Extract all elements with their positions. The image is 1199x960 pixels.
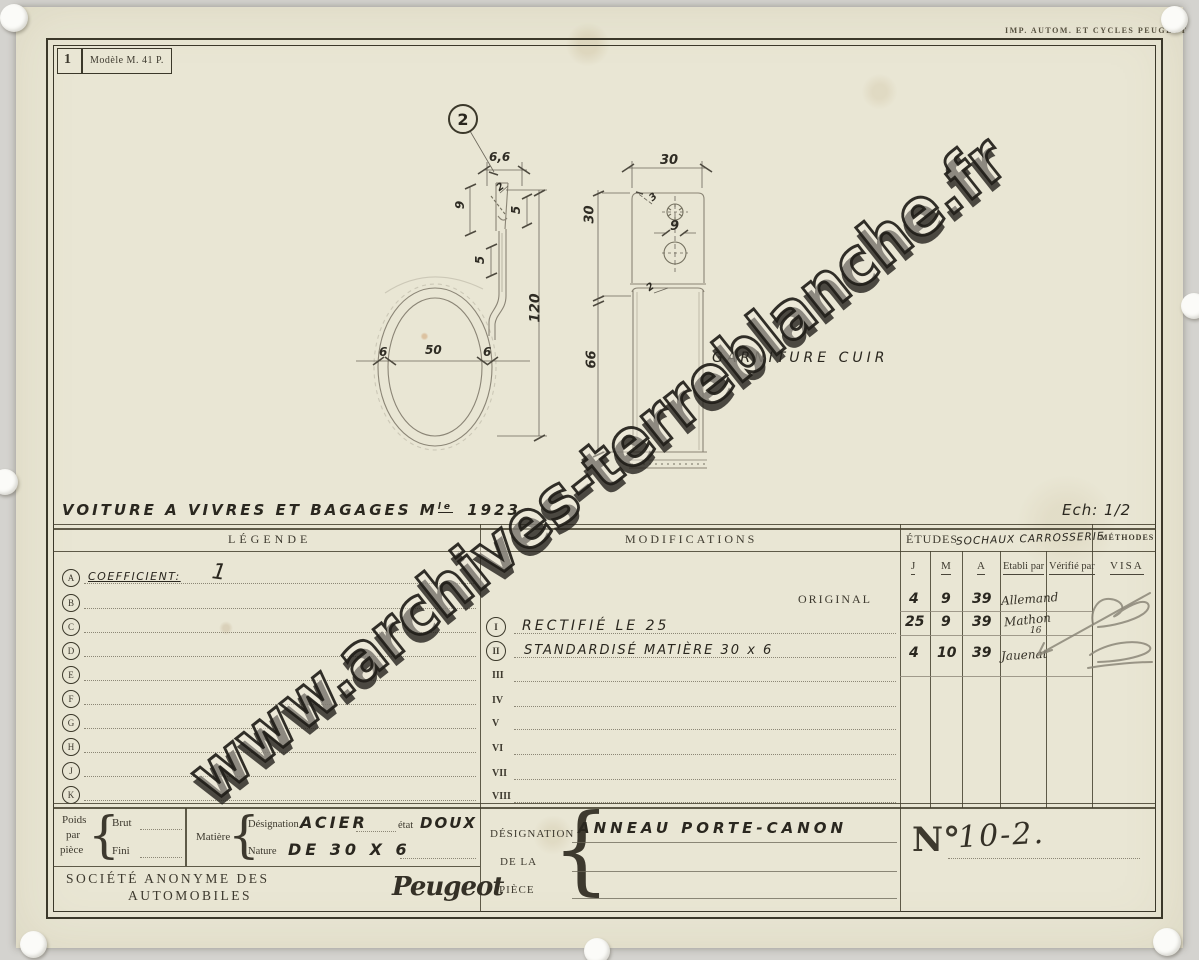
modif-line bbox=[514, 681, 896, 682]
legend-circle-j: J bbox=[62, 762, 80, 780]
modif-numeral-3: III bbox=[492, 670, 504, 681]
col-header-j: J bbox=[911, 560, 915, 575]
col-header-etabli: Etabli par bbox=[1003, 561, 1044, 575]
etudes-r2-j: 25 bbox=[905, 614, 924, 630]
etudes-r3-m: 10 bbox=[937, 645, 956, 661]
legende-header: LÉGENDE bbox=[228, 532, 311, 547]
designation-value: ACIER bbox=[300, 813, 368, 832]
legend-circle-c: C bbox=[62, 618, 80, 636]
legend-letter: A bbox=[68, 573, 75, 583]
printer-imprint: IMP. AUTOM. ET CYCLES PEUGEOT bbox=[1005, 26, 1188, 35]
table-top-line bbox=[53, 524, 1156, 525]
visa-header: VISA bbox=[1110, 560, 1144, 575]
dim-slot-a: 5 bbox=[509, 206, 523, 214]
legend-line bbox=[84, 776, 476, 777]
dim-ring-inner: 50 bbox=[425, 343, 442, 357]
piece-line-2 bbox=[572, 871, 897, 872]
modif-line bbox=[514, 754, 896, 755]
company-line1: SOCIÉTÉ ANONYME DES bbox=[66, 871, 270, 887]
modifications-header: MODIFICATIONS bbox=[625, 532, 757, 547]
piece-line-1 bbox=[572, 842, 897, 843]
modif-numeral-4: IV bbox=[492, 695, 503, 706]
scanned-drawing-page: IMP. AUTOM. ET CYCLES PEUGEOT 1 Modèle M… bbox=[0, 0, 1199, 960]
col-header-m: M bbox=[941, 560, 951, 575]
piece-brace: { bbox=[552, 793, 611, 905]
nature-value: DE 30 X 6 bbox=[288, 840, 411, 859]
modif-numeral-5: V bbox=[492, 718, 499, 729]
original-label: ORIGINAL bbox=[798, 592, 872, 607]
poids-label: Poids bbox=[62, 814, 86, 826]
visa-signatures bbox=[1020, 580, 1165, 680]
legend-letter: D bbox=[68, 646, 75, 656]
peugeot-logo: Peugeot bbox=[392, 872, 503, 902]
etudes-r2-m: 9 bbox=[941, 614, 951, 630]
etudes-r1-m: 9 bbox=[941, 591, 951, 607]
dim-overall-height: 120 bbox=[528, 293, 544, 322]
model-ref: Modèle M. 41 P. bbox=[90, 55, 164, 66]
legend-letter: C bbox=[68, 622, 74, 632]
nature-label: Nature bbox=[248, 846, 277, 857]
matiere-company-divider bbox=[53, 866, 480, 867]
mount-dot bbox=[1161, 6, 1188, 33]
piece-box-label2: DE LA bbox=[500, 856, 537, 868]
legend-circle-h: H bbox=[62, 738, 80, 756]
piece-label: pièce bbox=[60, 844, 83, 856]
modif-numeral: II bbox=[492, 646, 499, 656]
par-label: par bbox=[66, 829, 80, 841]
scale-note: Ech: 1/2 bbox=[1062, 501, 1131, 519]
legend-letter: F bbox=[68, 694, 73, 704]
legend-letter: J bbox=[69, 766, 73, 776]
drawing-number-label: N° bbox=[912, 820, 960, 860]
legend-letter: B bbox=[68, 598, 74, 608]
dim-strap-width: 30 bbox=[660, 153, 678, 168]
modif-numeral-7: VII bbox=[492, 768, 507, 779]
legend-letter: G bbox=[68, 718, 75, 728]
modif-text-1: RECTIFIÉ LE 25 bbox=[522, 618, 669, 634]
dim-ring-left: 6 bbox=[379, 345, 387, 359]
company-line2: AUTOMOBILES bbox=[128, 888, 252, 904]
piece-name: ANNEAU PORTE-CANON bbox=[578, 819, 847, 837]
legend-circle-f: F bbox=[62, 690, 80, 708]
dim-top-width: 6,6 bbox=[489, 150, 510, 164]
modif-text-2: STANDARDISÉ MATIÈRE 30 x 6 bbox=[524, 643, 773, 658]
matiere-label: Matière bbox=[196, 831, 230, 843]
modif-line bbox=[514, 706, 896, 707]
modif-numeral-6: VI bbox=[492, 743, 503, 754]
methodes-header: MÉTHODES bbox=[1100, 533, 1154, 542]
legend-line bbox=[84, 800, 476, 801]
modif-line bbox=[514, 779, 896, 780]
dim-ring-right: 6 bbox=[483, 345, 491, 359]
brut-line bbox=[140, 829, 182, 830]
part-balloon-number: 2 bbox=[457, 110, 468, 129]
col-header-a: A bbox=[977, 560, 985, 575]
fini-line bbox=[140, 857, 182, 858]
fini-label: Fini bbox=[112, 845, 130, 857]
designation-line bbox=[356, 831, 396, 832]
etudes-header: ÉTUDES bbox=[906, 532, 958, 547]
modif-line bbox=[514, 729, 896, 730]
table-header-underline bbox=[53, 551, 1156, 552]
col-m-a bbox=[962, 551, 963, 808]
dim-slot-b: 5 bbox=[473, 256, 487, 264]
modif-numeral: I bbox=[494, 622, 498, 632]
drawing-title: VOITURE A VIVRES ET BAGAGES Mle 1923 bbox=[62, 501, 521, 519]
dim-strap-upper: 30 bbox=[583, 205, 598, 223]
etat-value: DOUX bbox=[420, 814, 477, 832]
etudes-r1-j: 4 bbox=[909, 591, 919, 607]
drawing-number-line bbox=[948, 858, 1140, 859]
legend-letter: H bbox=[68, 742, 75, 752]
dim-strap-lower: 66 bbox=[585, 350, 600, 368]
title-text: VOITURE A VIVRES ET BAGAGES M bbox=[62, 501, 438, 519]
mount-dot bbox=[20, 931, 47, 958]
legend-letter: E bbox=[68, 670, 74, 680]
piece-box-label3: PIÈCE bbox=[499, 884, 535, 896]
brut-label: Brut bbox=[112, 817, 132, 829]
dim-hole-dia: 9 bbox=[670, 219, 679, 234]
legend-letter: K bbox=[68, 790, 75, 800]
modif-circle-1: I bbox=[486, 617, 506, 637]
col-a-etabli bbox=[1000, 551, 1001, 808]
legend-circle-d: D bbox=[62, 642, 80, 660]
legend-circle-b: B bbox=[62, 594, 80, 612]
modif-numeral-8: VIII bbox=[492, 791, 511, 802]
poids-matiere-divider bbox=[185, 808, 187, 866]
col-j-m bbox=[930, 551, 931, 808]
coefficient-label: COEFFICIENT: bbox=[88, 570, 181, 583]
modif-circle-2: II bbox=[486, 641, 506, 661]
col-header-verifie: Vérifié par bbox=[1049, 561, 1095, 575]
part-balloon: 2 bbox=[448, 104, 478, 134]
mount-dot bbox=[584, 938, 610, 960]
etudes-r2-a: 39 bbox=[972, 614, 991, 630]
title-superscript: le bbox=[438, 502, 453, 513]
nature-line bbox=[400, 858, 476, 859]
etat-label: état bbox=[398, 820, 413, 831]
mount-dot bbox=[1181, 293, 1199, 319]
sheet-number: 1 bbox=[64, 52, 71, 68]
legend-circle-g: G bbox=[62, 714, 80, 732]
table-top-line2 bbox=[53, 528, 1156, 530]
etudes-r3-j: 4 bbox=[909, 645, 919, 661]
drawing-number-value: 10-2. bbox=[957, 816, 1046, 856]
col-modif-etudes bbox=[900, 524, 901, 912]
designation-label: Désignation bbox=[248, 819, 299, 830]
dim-tip-height: 9 bbox=[453, 201, 467, 209]
piece-line-3 bbox=[572, 898, 897, 899]
etudes-r1-a: 39 bbox=[972, 591, 991, 607]
mount-dot bbox=[0, 4, 28, 32]
etudes-r3-a: 39 bbox=[972, 645, 991, 661]
mount-dot bbox=[1153, 928, 1181, 956]
legend-circle-e: E bbox=[62, 666, 80, 684]
legend-circle-a: A bbox=[62, 569, 80, 587]
legend-circle-k: K bbox=[62, 786, 80, 804]
